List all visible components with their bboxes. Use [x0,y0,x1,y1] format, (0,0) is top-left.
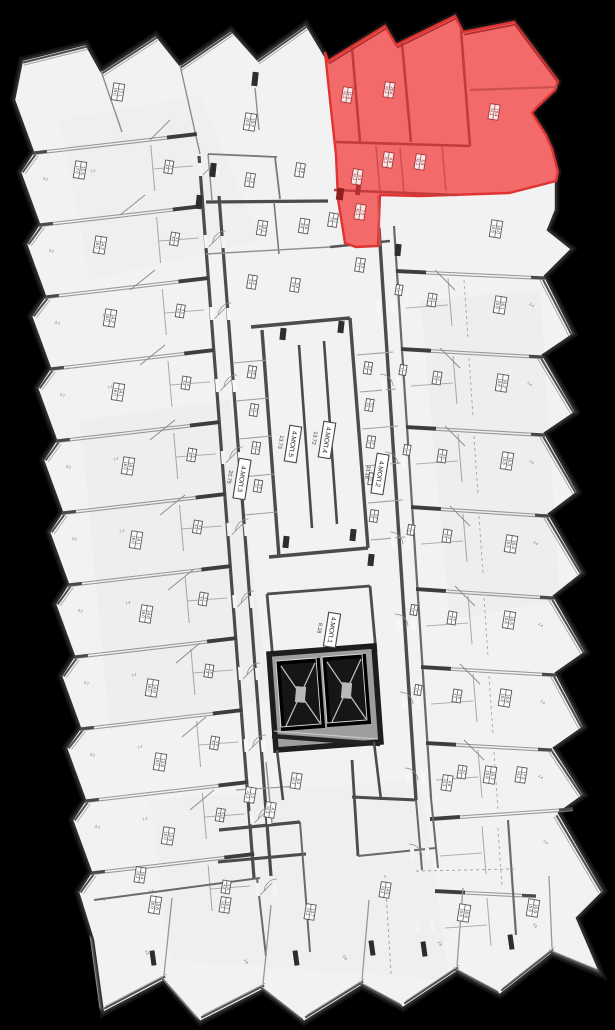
svg-text:7.1: 7.1 [356,262,361,267]
svg-text:4.4: 4.4 [199,596,204,601]
svg-text:7.0: 7.0 [329,217,334,222]
svg-text:1.4: 1.4 [107,385,113,390]
svg-text:4.2: 4.2 [448,615,453,620]
svg-text:1.4: 1.4 [137,745,143,750]
svg-text:4.4: 4.4 [176,308,181,313]
svg-text:4.2: 4.2 [438,453,443,458]
svg-text:9.4: 9.4 [257,225,262,231]
svg-text:8.9: 8.9 [299,223,304,229]
svg-text:4.4: 4.4 [170,236,175,241]
svg-text:4.2: 4.2 [433,375,438,380]
svg-text:4.4: 4.4 [210,740,215,745]
svg-text:4.4: 4.4 [165,164,170,169]
svg-text:4.4: 4.4 [187,452,192,457]
svg-text:4.4: 4.4 [193,524,198,529]
svg-text:4.4: 4.4 [182,380,187,385]
svg-text:1.4: 1.4 [142,817,148,822]
svg-text:6.6: 6.6 [246,177,251,182]
svg-text:1.4: 1.4 [148,889,154,894]
svg-text:4.4: 4.4 [222,884,227,889]
svg-text:5.4: 5.4 [248,279,253,284]
svg-text:4.2: 4.2 [453,693,458,698]
svg-text:5.5: 5.5 [291,282,296,287]
svg-text:4.2: 4.2 [443,533,448,538]
svg-text:4.2: 4.2 [458,769,463,774]
svg-text:4.2: 4.2 [428,297,433,302]
svg-text:4.4: 4.4 [205,668,210,673]
svg-text:4.4: 4.4 [216,812,221,817]
svg-text:7.7: 7.7 [296,167,301,172]
